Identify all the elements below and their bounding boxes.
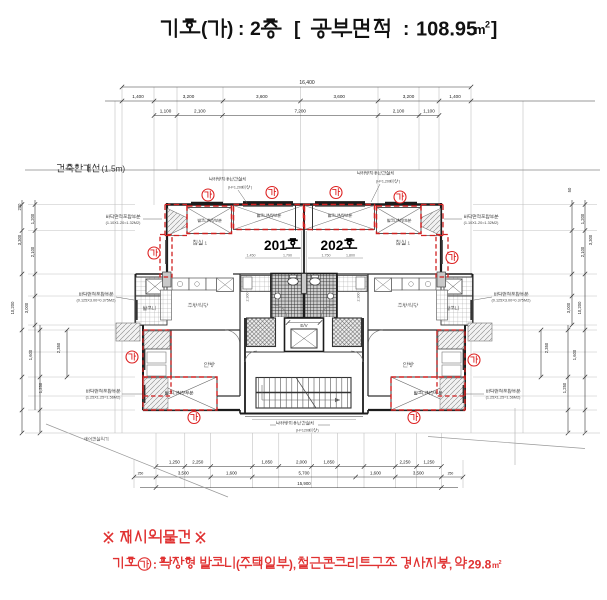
svg-text:202: 202 <box>321 238 344 253</box>
svg-text:(1.5m): (1.5m) <box>102 165 126 174</box>
svg-text:108.95: 108.95 <box>416 19 477 41</box>
svg-text:2,300: 2,300 <box>246 293 250 302</box>
svg-text:2: 2 <box>499 560 502 566</box>
svg-text:15,900: 15,900 <box>297 481 311 486</box>
svg-text:3,000: 3,000 <box>24 302 29 313</box>
svg-text:3,500: 3,500 <box>413 471 425 476</box>
svg-text:): ) <box>227 19 233 40</box>
svg-text:250: 250 <box>448 472 454 476</box>
svg-text:2: 2 <box>250 18 261 40</box>
svg-text:200: 200 <box>17 203 22 211</box>
svg-text:3,200: 3,200 <box>183 94 195 99</box>
svg-text:1,200: 1,200 <box>580 213 585 224</box>
svg-text:10,200: 10,200 <box>577 301 582 314</box>
svg-text:E/V: E/V <box>300 323 307 328</box>
svg-text:): ) <box>399 180 400 184</box>
svg-text:2,100: 2,100 <box>393 109 405 114</box>
svg-text:),: ), <box>289 559 296 572</box>
svg-text:(H=1,200: (H=1,200 <box>376 180 391 184</box>
svg-text:1,600: 1,600 <box>226 471 238 476</box>
svg-text:1,200: 1,200 <box>30 213 35 224</box>
svg-text:2,100: 2,100 <box>580 246 585 257</box>
svg-text:2,250: 2,250 <box>192 460 204 465</box>
svg-text:1,250: 1,250 <box>424 460 436 465</box>
svg-text:2,300: 2,300 <box>357 293 361 302</box>
svg-text:1,790: 1,790 <box>283 254 292 258</box>
svg-text:1,800: 1,800 <box>346 254 355 258</box>
svg-text:3,500: 3,500 <box>178 471 190 476</box>
svg-text:1,400: 1,400 <box>449 94 461 99</box>
svg-text:2,100: 2,100 <box>30 246 35 257</box>
svg-text:1,600: 1,600 <box>28 349 33 360</box>
svg-text:2,350: 2,350 <box>56 342 61 353</box>
svg-text:3,200: 3,200 <box>403 94 415 99</box>
svg-text:): ) <box>251 186 252 190</box>
svg-text:2: 2 <box>485 20 490 30</box>
svg-text:1,250: 1,250 <box>169 460 181 465</box>
svg-text:1,850: 1,850 <box>262 460 274 465</box>
svg-text:250: 250 <box>138 472 144 476</box>
svg-text:1,100: 1,100 <box>423 109 435 114</box>
svg-text:1,600: 1,600 <box>572 349 577 360</box>
svg-text:3,000: 3,000 <box>566 302 571 313</box>
svg-text:3,600: 3,600 <box>333 94 345 99</box>
svg-text:1,600: 1,600 <box>370 471 382 476</box>
svg-text:1: 1 <box>205 241 208 246</box>
svg-text:1,400: 1,400 <box>132 94 144 99</box>
svg-text:(H=1200: (H=1200 <box>296 429 310 433</box>
svg-text::: : <box>403 19 409 40</box>
svg-text:2,000: 2,000 <box>296 460 308 465</box>
svg-text:[: [ <box>294 19 301 40</box>
svg-text:]: ] <box>491 19 497 40</box>
svg-text:1,250: 1,250 <box>562 382 567 393</box>
svg-text:(1.25X1.25=1.56M2): (1.25X1.25=1.56M2) <box>486 395 521 399</box>
svg-text:3,600: 3,600 <box>256 94 268 99</box>
svg-text:2,350: 2,350 <box>544 342 549 353</box>
svg-text:1,450: 1,450 <box>247 254 256 258</box>
svg-text:1,850: 1,850 <box>324 460 336 465</box>
svg-text:m: m <box>474 22 486 37</box>
svg-text:2,100: 2,100 <box>194 109 206 114</box>
svg-text:1,750: 1,750 <box>322 254 331 258</box>
svg-text:3,300: 3,300 <box>588 234 593 245</box>
svg-text:,: , <box>449 559 452 572</box>
svg-text:7,200: 7,200 <box>294 109 306 114</box>
svg-text:3,300: 3,300 <box>17 234 22 245</box>
svg-text:(1.10X1.20=1.32M2): (1.10X1.20=1.32M2) <box>106 221 141 225</box>
svg-text:10,200: 10,200 <box>10 301 15 314</box>
svg-text:1,100: 1,100 <box>160 109 172 114</box>
svg-text:(0.125X3.00=0.375M2): (0.125X3.00=0.375M2) <box>77 298 117 302</box>
svg-text:1: 1 <box>408 241 411 246</box>
svg-text:29.8: 29.8 <box>468 558 492 572</box>
svg-text::: : <box>238 19 244 40</box>
svg-text:(: ( <box>201 19 208 40</box>
svg-text:(H=1,200: (H=1,200 <box>228 186 243 190</box>
svg-text::: : <box>153 559 157 572</box>
svg-text:(1.10X1.20=1.32M2): (1.10X1.20=1.32M2) <box>464 221 499 225</box>
svg-text:201: 201 <box>264 238 287 253</box>
svg-text:(0.125X3.00=0.375M2): (0.125X3.00=0.375M2) <box>492 298 532 302</box>
svg-text:16,400: 16,400 <box>299 80 315 86</box>
svg-text:5,700: 5,700 <box>299 471 311 476</box>
svg-text:): ) <box>318 429 319 433</box>
svg-text:(1.25X1.25=1.56M2): (1.25X1.25=1.56M2) <box>86 395 121 399</box>
svg-text:50: 50 <box>567 187 572 192</box>
svg-text:2,250: 2,250 <box>400 460 412 465</box>
svg-text:1,250: 1,250 <box>38 382 43 393</box>
